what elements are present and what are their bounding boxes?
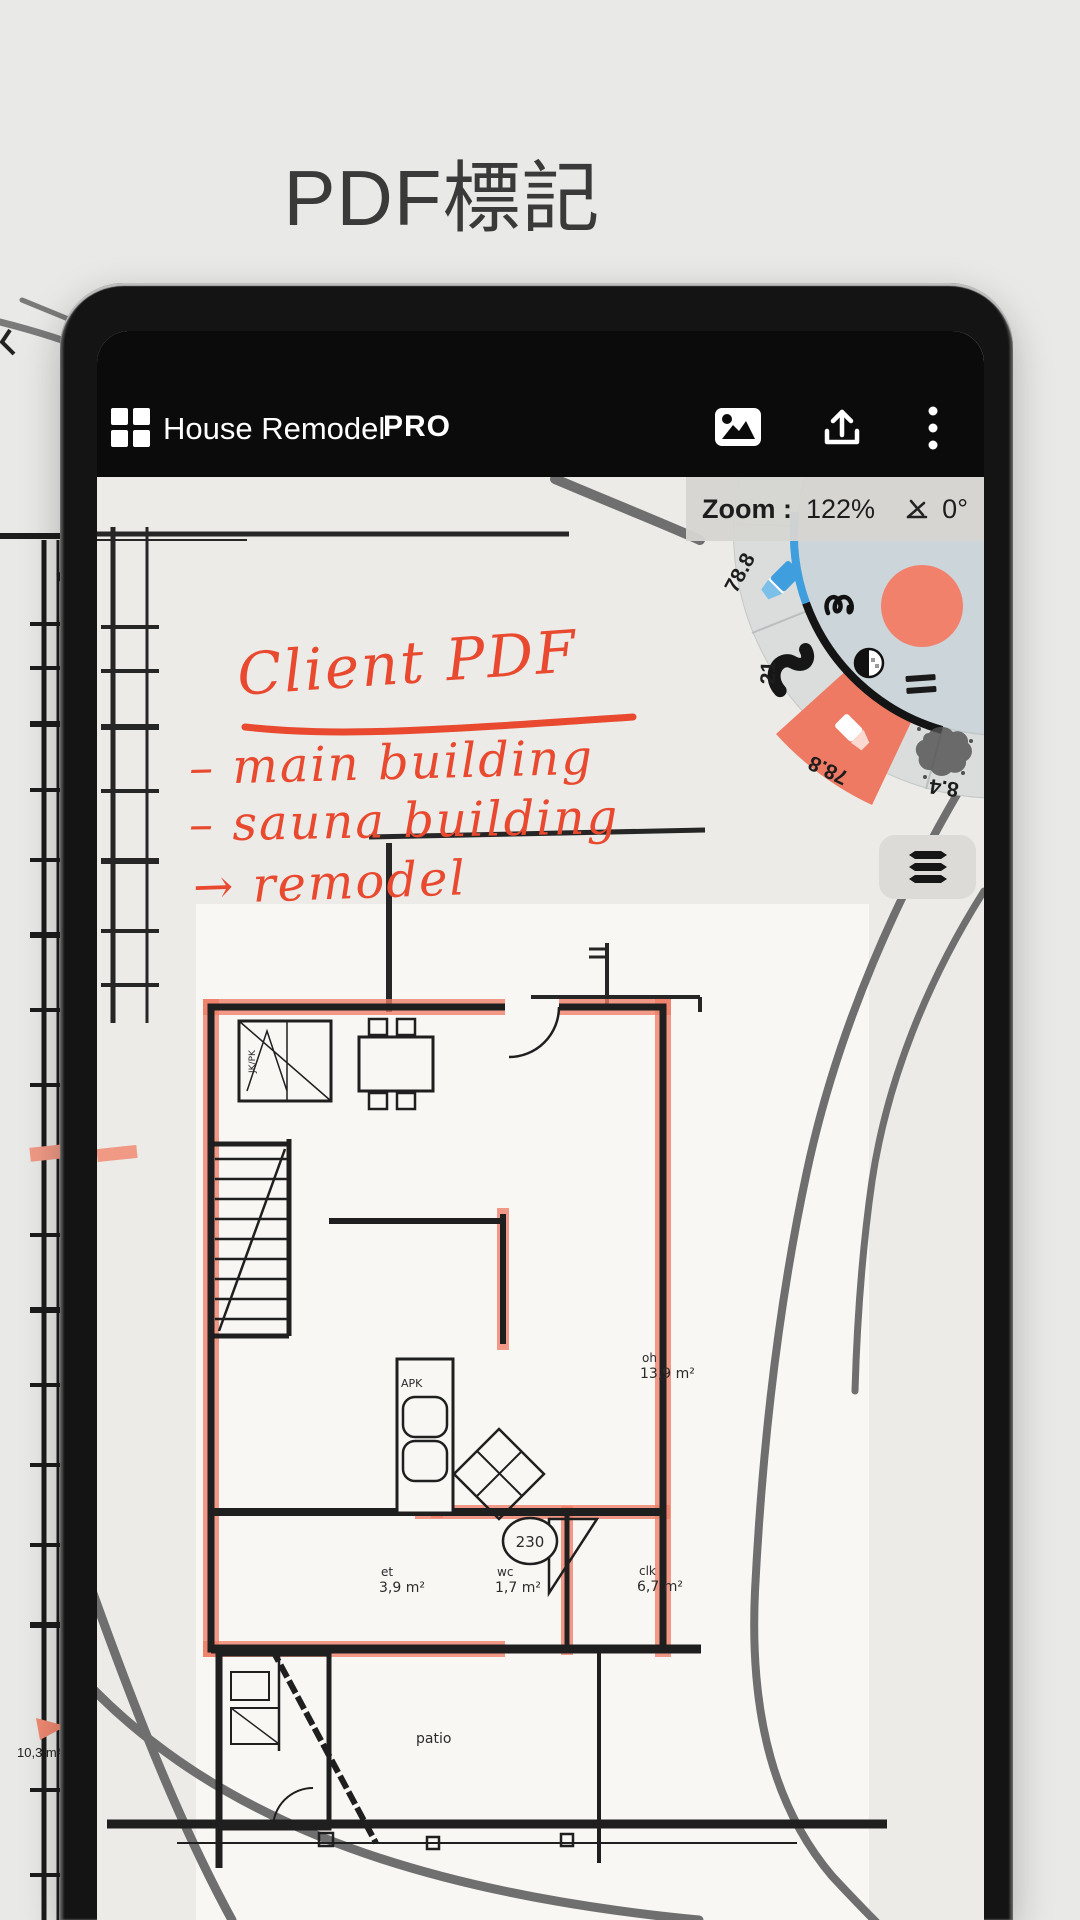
patio-label: patio — [416, 1731, 451, 1747]
page-title: PDF標記 — [283, 136, 600, 248]
door-width-label: 230 — [516, 1533, 545, 1551]
angle-value: 0° — [942, 494, 968, 525]
pdf-canvas[interactable]: oh 13,9 m² et 3,9 m² wc 1,7 m² clk 6,7 m… — [97, 331, 984, 1920]
room-label: oh — [642, 1351, 657, 1365]
app-bar: House Remodel PRO — [97, 331, 984, 477]
room-area: 13,9 m² — [640, 1366, 695, 1382]
angle-disabled-icon — [904, 496, 930, 522]
handwritten-item: – main building — [188, 730, 594, 797]
grid-icon[interactable] — [111, 408, 150, 447]
pro-badge: PRO — [383, 410, 451, 444]
overflow-menu-icon[interactable] — [928, 406, 938, 450]
room-area: 1,7 m² — [495, 1580, 541, 1596]
share-icon[interactable] — [819, 404, 865, 450]
room-label: clk — [639, 1564, 656, 1578]
layers-button[interactable] — [879, 835, 976, 899]
room-label: wc — [497, 1565, 513, 1579]
document-title: House Remodel — [163, 411, 385, 447]
room-label: et — [381, 1565, 393, 1579]
zoom-readout[interactable]: Zoom : 122% 0° — [686, 477, 984, 541]
zoom-label: Zoom : — [702, 494, 792, 525]
fixture-label: APK — [401, 1377, 423, 1390]
background-area-label: 10,3 m² — [17, 1745, 62, 1760]
phone-frame: oh 13,9 m² et 3,9 m² wc 1,7 m² clk 6,7 m… — [60, 283, 1013, 1920]
handwritten-item: – sauna building — [189, 789, 620, 853]
color-swatch[interactable] — [881, 565, 963, 647]
segment-size-label: 8.4 — [928, 774, 960, 801]
layers-icon — [904, 845, 952, 889]
zoom-value: 122% — [806, 494, 875, 525]
phone-screen: oh 13,9 m² et 3,9 m² wc 1,7 m² clk 6,7 m… — [97, 331, 984, 1920]
room-area: 3,9 m² — [379, 1580, 425, 1596]
handwritten-item: → remodel — [192, 850, 468, 916]
room-area: 6,7 m² — [637, 1579, 683, 1595]
opacity-icon[interactable] — [855, 649, 883, 677]
segment-size-label: 21 — [757, 660, 781, 684]
closet-label: JK/PK — [248, 1049, 258, 1074]
app-store-screenshot: 10,3 m² PDF標記 — [0, 0, 1080, 1920]
image-icon[interactable] — [714, 407, 762, 447]
